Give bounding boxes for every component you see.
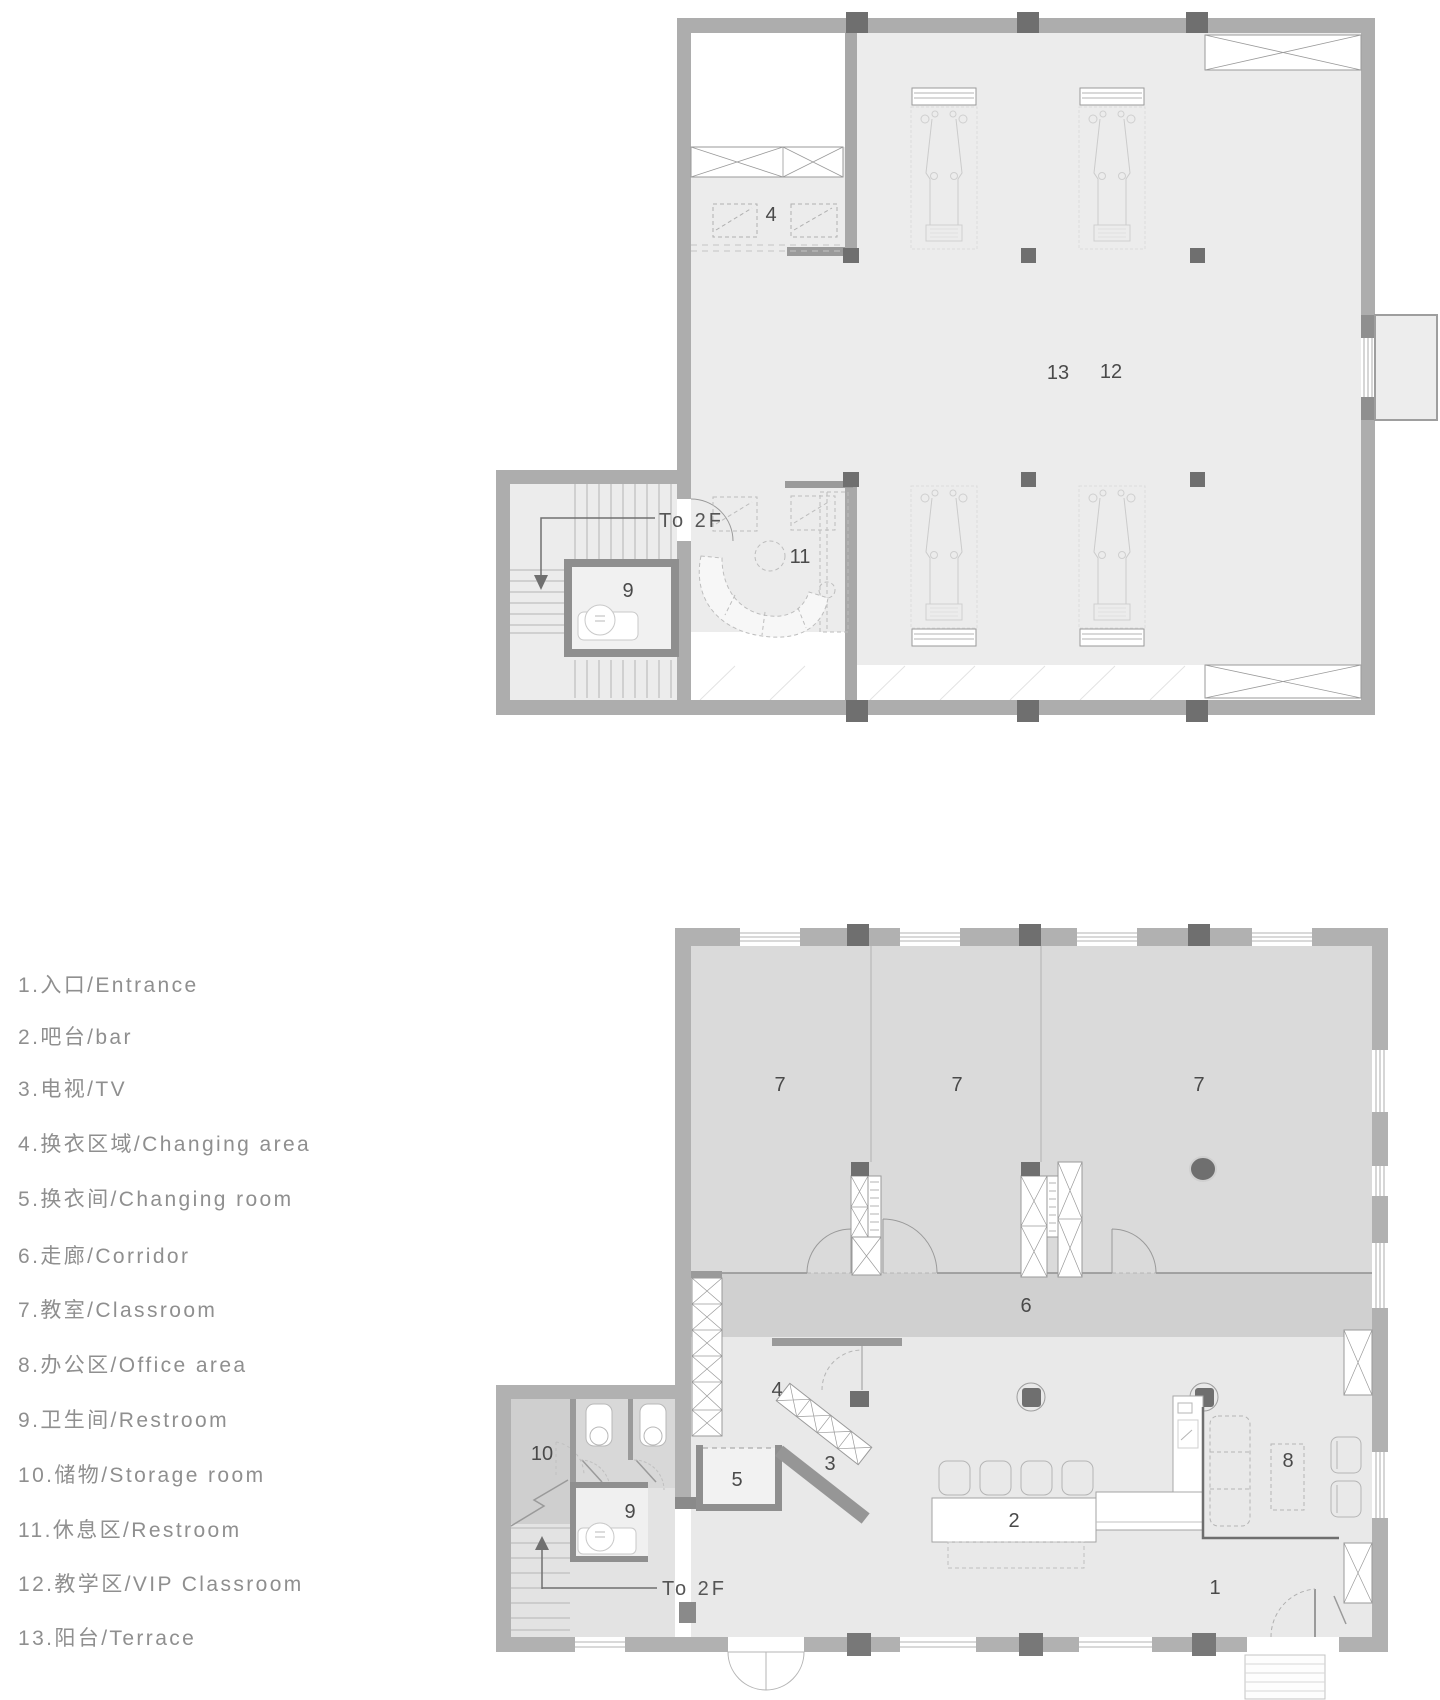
1f-to2f-text: To 2F bbox=[662, 1578, 727, 1600]
legend-item-lounge: 11.休息区/Restroom bbox=[18, 1517, 242, 1545]
1f-label-office: 8 bbox=[1282, 1450, 1293, 1472]
1f-label-changing-area: 4 bbox=[771, 1379, 782, 1401]
legend-item-storage-room: 10.储物/Storage room bbox=[18, 1462, 265, 1490]
legend-item-restroom: 9.卫生间/Restroom bbox=[18, 1407, 229, 1435]
1f-label-corridor: 6 bbox=[1020, 1295, 1031, 1317]
floor-plan-2f: 4 9 11 13 12 To 2F bbox=[440, 0, 1440, 750]
2f-label-terrace: 13 bbox=[1047, 362, 1069, 384]
legend-item-changing-room: 5.换衣间/Changing room bbox=[18, 1186, 294, 1214]
1f-label-classroom-2: 7 bbox=[951, 1074, 962, 1096]
2f-restroom bbox=[568, 563, 675, 653]
legend-item-bar: 2.吧台/bar bbox=[18, 1024, 133, 1052]
legend-item-terrace: 13.阳台/Terrace bbox=[18, 1625, 196, 1653]
legend-item-office-area: 8.办公区/Office area bbox=[18, 1352, 247, 1380]
2f-label-vip-classroom: 12 bbox=[1100, 361, 1122, 383]
1f-restroom bbox=[570, 1482, 648, 1562]
1f-label-storage: 10 bbox=[531, 1443, 553, 1465]
1f-label-entrance: 1 bbox=[1209, 1577, 1220, 1599]
2f-label-lounge: 11 bbox=[790, 546, 811, 568]
2f-label-restroom: 9 bbox=[622, 580, 633, 602]
legend-item-vip-classroom: 12.教学区/VIP Classroom bbox=[18, 1571, 304, 1599]
1f-wall-wardrobe bbox=[691, 1271, 722, 1436]
legend-item-changing-area: 4.换衣区域/Changing area bbox=[18, 1131, 311, 1159]
2f-balcony bbox=[1375, 315, 1437, 420]
1f-label-restroom: 9 bbox=[624, 1501, 635, 1523]
1f-label-bar: 2 bbox=[1008, 1510, 1019, 1532]
floorplan-page: 1.入口/Entrance 2.吧台/bar 3.电视/TV 4.换衣区域/Ch… bbox=[0, 0, 1440, 1700]
1f-label-classroom-3: 7 bbox=[1193, 1074, 1204, 1096]
2f-to2f-text: To 2F bbox=[659, 510, 724, 532]
floor-plan-1f: 7 7 7 6 4 5 3 2 8 1 9 10 To 2F bbox=[440, 840, 1440, 1700]
1f-label-changing-room: 5 bbox=[731, 1469, 742, 1491]
legend-item-entrance: 1.入口/Entrance bbox=[18, 972, 199, 1000]
1f-label-tv: 3 bbox=[824, 1453, 835, 1475]
1f-label-classroom-1: 7 bbox=[774, 1074, 785, 1096]
legend-item-classroom: 7.教室/Classroom bbox=[18, 1297, 217, 1325]
legend-item-tv: 3.电视/TV bbox=[18, 1076, 127, 1104]
legend-item-corridor: 6.走廊/Corridor bbox=[18, 1243, 190, 1271]
2f-label-changing-area: 4 bbox=[765, 204, 776, 226]
